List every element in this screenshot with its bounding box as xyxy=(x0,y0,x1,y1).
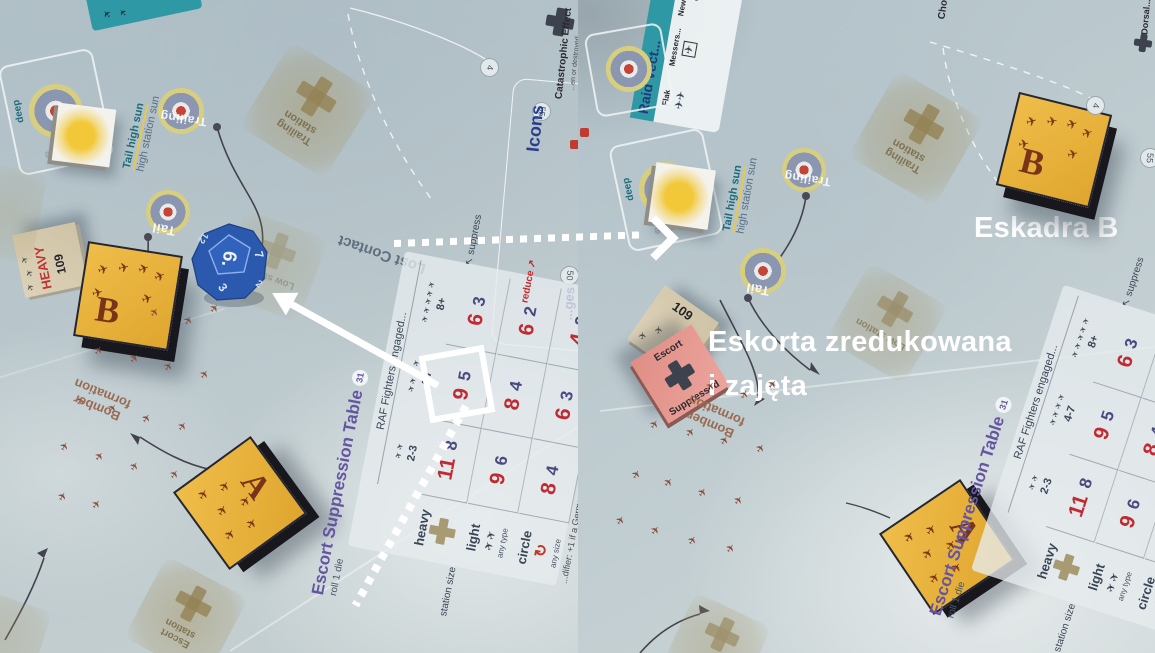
plane-icon xyxy=(425,289,435,298)
plane-icon xyxy=(92,449,108,464)
circle-arrow-icon xyxy=(532,543,551,559)
plane-icon xyxy=(1107,572,1121,583)
plane-icon xyxy=(1073,342,1083,350)
station-size-label: station size xyxy=(1051,600,1079,653)
plane-icon xyxy=(395,442,405,451)
plane-icon xyxy=(661,475,677,490)
plane-icon xyxy=(194,486,213,503)
plane-icon xyxy=(127,459,143,474)
plane-icon xyxy=(422,306,432,315)
plane-icon xyxy=(484,529,499,541)
plane-icon xyxy=(1070,350,1080,358)
photo-before: deep zone Tail high sun high station sun… xyxy=(0,0,578,653)
plane-icon xyxy=(242,515,261,532)
red-icon xyxy=(570,140,578,149)
plane-icon xyxy=(167,467,183,482)
plane-icon xyxy=(161,359,177,373)
station-size-label: station size xyxy=(438,563,459,620)
flak-planes-icon: ✈✈ xyxy=(673,90,688,110)
plane-icon xyxy=(647,417,663,432)
plane-icon xyxy=(731,493,747,508)
plane-icon xyxy=(91,343,107,358)
plane-icon xyxy=(1076,334,1086,342)
raf-roundel xyxy=(602,42,655,95)
station-cross-icon xyxy=(700,612,745,653)
plane-icon xyxy=(55,489,71,503)
plane-icon xyxy=(95,260,111,279)
plane-icon xyxy=(1051,410,1061,418)
plane-icon xyxy=(175,419,191,434)
plane-icon xyxy=(685,533,701,548)
plane-icon xyxy=(23,266,36,279)
plane-icon xyxy=(683,425,699,440)
plane-icon xyxy=(426,280,436,289)
plane-icon xyxy=(406,385,416,394)
plane-icon xyxy=(423,297,433,306)
plane-icon xyxy=(695,485,711,500)
plane-icon xyxy=(136,260,152,279)
plane-icon xyxy=(127,351,143,366)
plane-icon xyxy=(147,305,163,320)
plane-icon xyxy=(152,267,168,286)
plane-icon xyxy=(638,331,650,340)
annotation-eskadra-b: Eskadra B xyxy=(974,212,1119,245)
plane-icon xyxy=(1056,393,1066,401)
plane-icon xyxy=(213,502,232,518)
plane-icon xyxy=(481,540,496,552)
plane-icon xyxy=(57,439,73,453)
plane-icon xyxy=(139,411,155,426)
photo-after: Raid Vect... Flak✈✈ Messers...✈ New Trad… xyxy=(578,0,1155,653)
plane-icon xyxy=(1081,317,1091,325)
plane-icon xyxy=(1024,113,1038,131)
table-ref-badge: 31 xyxy=(994,395,1014,415)
plane-icon xyxy=(1027,482,1037,490)
plane-icon xyxy=(723,541,739,556)
plane-icon xyxy=(900,529,919,546)
plane-icon xyxy=(24,281,37,294)
red-icon xyxy=(580,128,589,137)
plane-icon xyxy=(1066,146,1080,164)
plane-icon xyxy=(1078,325,1088,333)
die-d12-blue: 6. 7 3 12 2 xyxy=(188,222,272,310)
plane-icon xyxy=(629,467,645,481)
plane-icon xyxy=(918,545,937,562)
plane-icon xyxy=(1046,113,1059,130)
zone-label-deep: deep xyxy=(11,99,27,124)
plane-icon xyxy=(117,6,130,19)
plane-icon xyxy=(89,497,105,512)
trade-icon: ▾ xyxy=(692,0,705,3)
annotation-eskorta-line1: Eskorta zredukowana xyxy=(708,326,1012,359)
zone-box xyxy=(583,22,674,118)
zone-label-deep: deep xyxy=(621,177,637,202)
plane-icon xyxy=(221,526,240,543)
table-ref-badge: 31 xyxy=(351,368,370,387)
plane-icon xyxy=(1065,116,1079,134)
sun-counter xyxy=(52,103,117,168)
plane-icon xyxy=(765,377,781,392)
plane-icon xyxy=(737,387,753,401)
counter-heavy-number: 109 xyxy=(51,253,69,276)
plane-icon xyxy=(420,314,430,323)
plane-icon xyxy=(654,325,666,334)
plane-icon xyxy=(1080,124,1095,143)
plane-icon xyxy=(1048,418,1058,426)
plane-icon xyxy=(613,513,629,527)
plane-icon xyxy=(753,441,769,456)
plane-icon xyxy=(648,523,664,538)
plane-icon xyxy=(101,6,115,20)
plane-icon xyxy=(1104,582,1118,593)
plane-icon xyxy=(922,521,941,539)
plane-icon xyxy=(181,313,197,327)
plane-icon xyxy=(393,451,403,460)
plane-icon xyxy=(703,379,719,394)
plane-icon xyxy=(117,259,131,277)
plane-icon xyxy=(1054,402,1064,410)
plane-icon xyxy=(197,367,213,382)
fighter-box-icon: ✈ xyxy=(681,41,697,58)
board-photo-comparison: deep zone Tail high sun high station sun… xyxy=(0,0,1155,653)
plane-icon xyxy=(1030,474,1040,482)
heavy-cross-icon xyxy=(427,516,457,546)
cross-icon xyxy=(1133,33,1153,53)
